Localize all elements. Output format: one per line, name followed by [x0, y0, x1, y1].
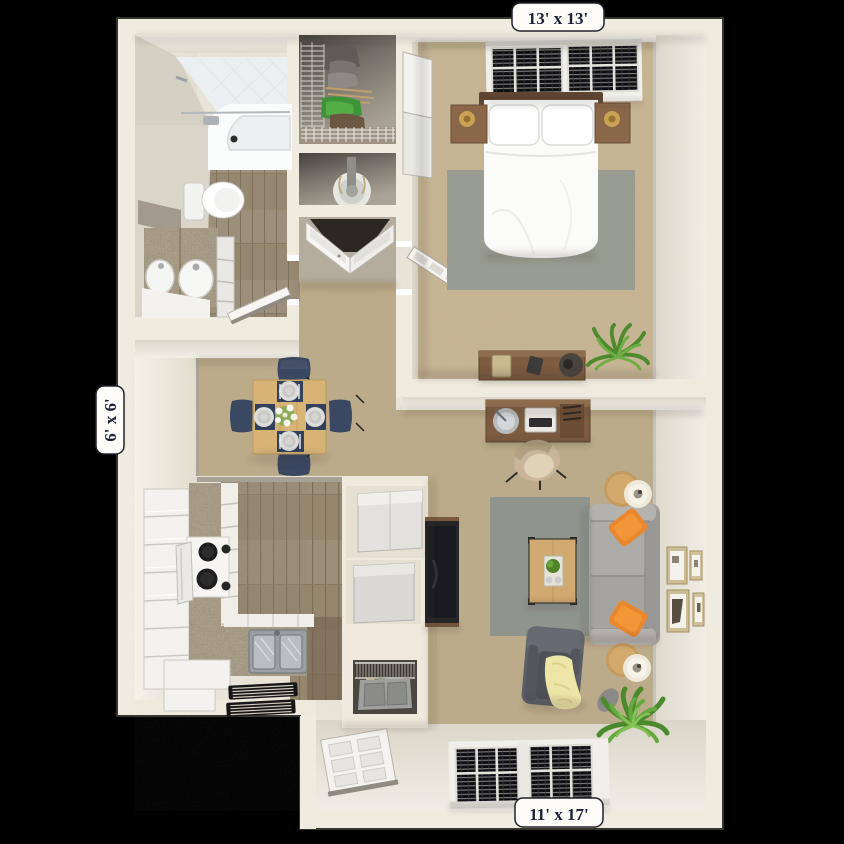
svg-text:6' x 6': 6' x 6': [101, 398, 120, 441]
svg-text:11' x 17': 11' x 17': [529, 805, 589, 824]
svg-text:13' x 13': 13' x 13': [528, 9, 588, 28]
